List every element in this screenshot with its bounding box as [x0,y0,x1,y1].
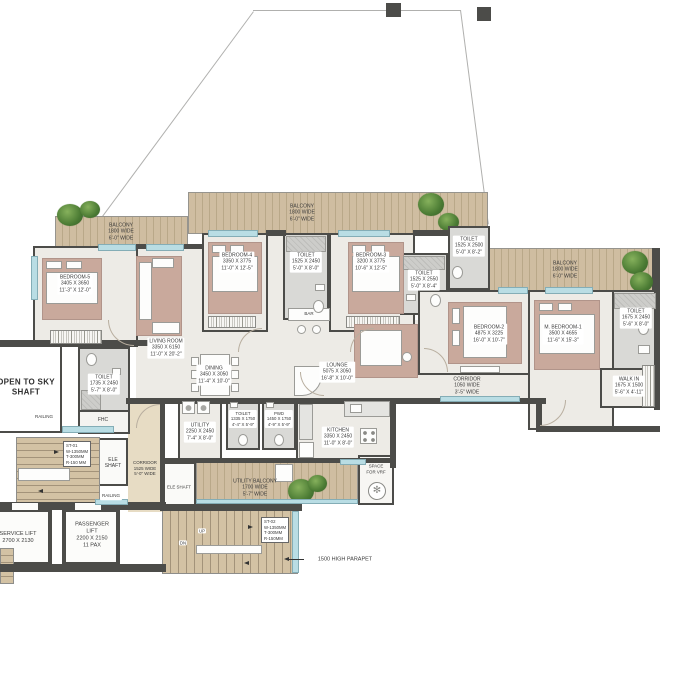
utility-balcony-label: UTILITY BALCONY1700 WIDE5'-7" WIDE [233,479,277,498]
wall [536,426,660,432]
tree-icon [308,475,327,492]
shower-area [286,236,326,252]
wash-basin [266,402,274,408]
balcony-middle-label: BALCONY1800 WIDE6'-0" WIDE [289,204,315,223]
fhc-label: FHC [98,417,108,423]
wardrobe [50,330,102,344]
lounge-label: LOUNGE5075 X 305016'-8" X 10'-0" [319,362,355,383]
ele-shaft-balcony-label: ELE SHAFT [167,484,191,490]
stair-direction-arrow [244,561,249,565]
bed-pillow [452,330,460,346]
tree-icon [80,201,100,218]
ele-shaft-core-label: ELESHAFT [105,457,121,470]
wash-basin [638,345,650,354]
railing-top-label: RAILING [33,413,55,421]
wc-toilet [430,294,441,307]
leader-arrow [284,557,289,561]
parapet-note-label: 1500 HIGH PARAPET [318,557,372,564]
bed-pillow [558,303,572,311]
bed-pillow [66,261,82,269]
lift-door-gap [12,503,38,510]
bar-stool [312,325,321,334]
floor-plan: ✻ BALCONY1800 WIDE6'-0" WIDE BALCONY1800… [0,0,700,700]
kitchen-cabinet [299,404,313,440]
toilet-common1-label: TOILET1525 X 24505'-0" X 8'-0" [290,252,322,273]
corridor-left-label: CORRIDOR1525 WIDE5'-0" WIDE [133,460,157,477]
railing-glass [95,499,128,505]
mbedroom1-label: M. BEDROOM-13500 X 465511'-6" X 15'-3" [542,324,583,345]
wall [266,230,286,236]
bed-pillow [539,303,553,311]
kitchen-sink [350,404,362,413]
window [208,230,258,237]
washing-machine-icon [182,401,195,414]
toilet-mid-label: TOILET1525 X 25505'-0" X 8'-4" [408,270,440,291]
window [338,230,390,237]
wall [413,230,450,236]
wash-basin [230,402,238,408]
terrace-outline-top [253,10,461,11]
leader-line [288,559,304,560]
lounge-table [402,352,412,362]
utility-label: UTILITY2250 X 24507'-4" X 8'-0" [184,422,216,443]
bedroom5-label: BEDROOM-53405 X 365011'-3" X 12'-0" [57,274,92,295]
toilet-left-label: TOILET1735 X 24505'-7" X 8'-0" [88,374,120,395]
bench [460,366,500,373]
window [545,287,593,294]
bed-pillow [46,261,62,269]
dining-label: DINING3450 X 305011'-4" X 10'-0" [196,365,231,386]
tree-icon [418,193,444,216]
fridge [299,442,314,458]
shower-area [403,256,445,270]
shower-area [614,293,656,309]
tree-icon [57,204,83,226]
dining-chair [231,370,239,379]
vrf-fan-icon: ✻ [368,482,386,500]
stair-st02-rail [196,545,262,554]
window [98,244,136,251]
toilet-bedroom3-label: TOILET1525 X 25005'-0" X 8'-2" [453,236,485,257]
wc-toilet [313,300,324,313]
stair-direction-arrow [248,525,253,529]
stair-direction-arrow [38,489,43,493]
dn-label: DN [179,540,187,545]
st02-note: ST-02W-1350MMT-300MMR-150MM [261,517,289,543]
service-lift-label: SERVICE LIFT2700 X 2130 [0,531,36,545]
up-label: UP [198,528,206,533]
bedroom2-label: BEDROOM-24875 X 322516'-0" X 10'-7" [471,324,507,345]
washing-machine-icon [197,401,210,414]
stair-direction-arrow [54,450,59,454]
window [340,459,366,465]
wash-basin [315,284,325,291]
stair-st01-rail [18,468,70,481]
passenger-lift-label: PASSENGERLIFT 2200 X 215011 PAX [75,521,109,549]
wall [160,504,302,511]
window [440,396,520,402]
water-heater [275,464,293,482]
wc-toilet [452,266,463,279]
dining-chair [231,383,239,392]
wall [160,398,165,508]
window [498,287,528,294]
wash-basin [406,294,416,301]
balcony-right-end-wall [652,248,660,292]
corridor-right-label: CORRIDOR1050 WIDE3'-5" WIDE [453,377,480,396]
bed-pillow [452,308,460,324]
window [146,244,184,251]
railing-bottom-label: RAILING [100,492,122,500]
balcony-top-left-label: BALCONY1800 WIDE6'-0" WIDE [108,223,134,242]
bedroom4-label: BEDROOM-43350 X 377511'-0" X 12'-5" [219,252,254,273]
vrf-label: SPACEFOR VRF [366,464,385,475]
armchair [152,258,174,268]
kitchen-label: KITCHEN3350 X 245011'-0" X 8'-0" [322,427,354,448]
wc-toilet [274,434,284,446]
column-stub [477,7,491,21]
column-stub [386,3,401,17]
bar-label: BAR [304,311,313,317]
railing-glass [62,426,114,433]
st01-note: ST-01W-1350MMT-300MMR-150 MM [63,441,91,467]
bedroom3-label: BEDROOM-33200 X 377510'-6" X 12'-5" [353,252,389,273]
parapet [196,499,358,504]
dining-chair [231,357,239,366]
toilet-master-label: TOILET1675 X 24505'-6" X 8'-0" [620,308,652,329]
stove-icon [360,428,377,444]
tree-icon [622,251,648,274]
toilet-small-label: TOILET1335 X 17504'-4" X 5'-9" [229,410,257,428]
wc-toilet [238,434,248,446]
wall [0,564,166,572]
tree-icon [630,272,653,292]
living-room-label: LIVING ROOM3350 X 615011'-0" X 20'-2" [147,338,184,359]
wc-toilet [86,353,97,366]
window [31,256,38,300]
sofa [152,322,180,334]
wardrobe [208,316,256,328]
pwd-label: PWD1450 X 17504'-9" X 5'-9" [265,410,293,428]
parapet-stair [292,511,299,573]
walkin-label: WALK IN1675 X 15005'-6" X 4'-11" [613,376,645,397]
balcony-right-label: BALCONY1800 WIDE6'-0" WIDE [552,261,578,280]
bar-stool [297,325,306,334]
sofa [139,262,152,320]
open-to-sky-label: OPEN TO SKYSHAFT [0,378,55,399]
